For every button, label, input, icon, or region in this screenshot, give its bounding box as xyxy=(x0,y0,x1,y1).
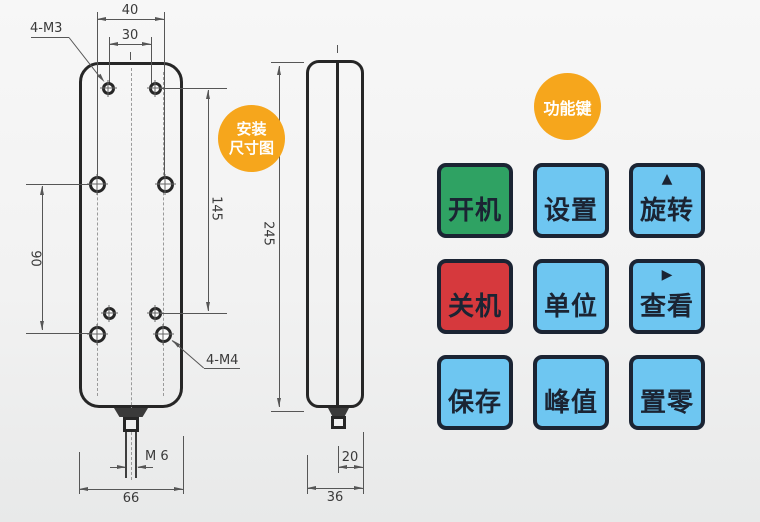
mounting-hole-m4 xyxy=(157,176,174,193)
dim-label-90: 90 xyxy=(29,241,42,277)
sensor-neck xyxy=(114,408,148,417)
extension-line xyxy=(271,62,304,63)
leader-underline xyxy=(204,368,240,369)
dim-arrow xyxy=(109,42,118,46)
peak-button: 峰值 xyxy=(533,355,609,430)
dim-arrow xyxy=(206,90,210,99)
extension-line xyxy=(160,88,227,89)
hole-label-4-M4: 4-M4 xyxy=(206,354,246,367)
dim-arrow xyxy=(117,465,126,469)
function-badge-label: 功能键 xyxy=(543,95,591,119)
settings-button: 设置 xyxy=(533,163,609,238)
key-label: 旋转 xyxy=(640,190,694,227)
extension-line xyxy=(26,184,92,185)
dim-arrow xyxy=(354,486,363,490)
dim-label-40: 40 xyxy=(112,4,148,17)
dim-arrow xyxy=(142,42,151,46)
key-label: 开机 xyxy=(448,190,502,227)
dim-label-66: 66 xyxy=(113,492,149,505)
unit-button: 单位 xyxy=(533,259,609,334)
function-key-grid: 开机 设置 ▲ 旋转 关机 单位 ▶ 查看 保存 峰值 xyxy=(437,163,705,430)
dim-arrow xyxy=(174,487,183,491)
side-view-outline xyxy=(306,60,364,408)
install-badge-line2: 尺寸图 xyxy=(229,139,274,158)
dim-arrow xyxy=(307,486,316,490)
hole-label-4-M3: 4-M3 xyxy=(30,22,70,35)
thread-label-M6: M 6 xyxy=(145,450,175,463)
extension-line xyxy=(97,12,98,184)
extension-line xyxy=(26,333,92,334)
install-badge-line1: 安装 xyxy=(236,120,266,139)
key-label: 设置 xyxy=(544,190,598,227)
dim-label-30: 30 xyxy=(112,29,148,42)
zero-button: 置零 xyxy=(629,355,705,430)
key-label: 单位 xyxy=(544,286,598,323)
mounting-hole-m3 xyxy=(103,307,116,320)
mounting-hole-m3 xyxy=(102,82,115,95)
view-button: ▶ 查看 xyxy=(629,259,705,334)
dim-label-145: 145 xyxy=(210,189,223,229)
power-on-button: 开机 xyxy=(437,163,513,238)
side-top-centerline-tick xyxy=(337,45,338,53)
dim-label-20: 20 xyxy=(336,451,364,464)
leader-underline xyxy=(31,37,69,38)
key-label: 置零 xyxy=(640,382,694,419)
sensor-shaft xyxy=(125,432,137,478)
install-dimension-badge: 安装 尺寸图 xyxy=(218,105,285,172)
dim-line-245 xyxy=(279,66,280,407)
dim-arrow xyxy=(40,321,44,330)
sensor-nut-side xyxy=(331,416,346,429)
up-triangle-icon: ▲ xyxy=(633,172,701,186)
dim-line-66 xyxy=(79,489,183,490)
dim-arrow xyxy=(137,465,146,469)
dim-arrow xyxy=(79,487,88,491)
dim-arrow xyxy=(155,17,164,21)
dim-line-40 xyxy=(97,19,164,20)
extension-line xyxy=(151,37,152,88)
dim-arrow xyxy=(277,66,281,75)
key-label: 关机 xyxy=(448,286,502,323)
dim-arrow xyxy=(354,465,363,469)
dim-arrow xyxy=(97,17,106,21)
key-label: 保存 xyxy=(448,382,502,419)
product-dimension-diagram: 40 30 4-M3 145 90 4-M4 M 6 66 xyxy=(0,0,760,522)
function-keys-badge: 功能键 xyxy=(534,73,601,140)
power-off-button: 关机 xyxy=(437,259,513,334)
side-panel-edge-line xyxy=(336,63,339,405)
extension-line xyxy=(164,12,165,184)
extension-line xyxy=(183,436,184,494)
key-label: 峰值 xyxy=(544,382,598,419)
extension-line xyxy=(271,411,304,412)
extension-line xyxy=(160,313,227,314)
right-triangle-icon: ▶ xyxy=(633,268,701,282)
dim-label-245: 245 xyxy=(262,214,275,254)
sensor-nut xyxy=(123,417,139,432)
dim-label-36: 36 xyxy=(321,491,349,504)
key-label: 查看 xyxy=(640,286,694,323)
mounting-hole-m4 xyxy=(89,326,106,343)
front-top-centerline-tick xyxy=(130,52,131,60)
dim-arrow xyxy=(206,302,210,311)
dim-arrow xyxy=(338,465,347,469)
save-button: 保存 xyxy=(437,355,513,430)
dim-arrow xyxy=(40,186,44,195)
sensor-neck-side xyxy=(328,408,349,416)
mounting-hole-m4 xyxy=(155,326,172,343)
rotate-button: ▲ 旋转 xyxy=(629,163,705,238)
dim-arrow xyxy=(277,398,281,407)
